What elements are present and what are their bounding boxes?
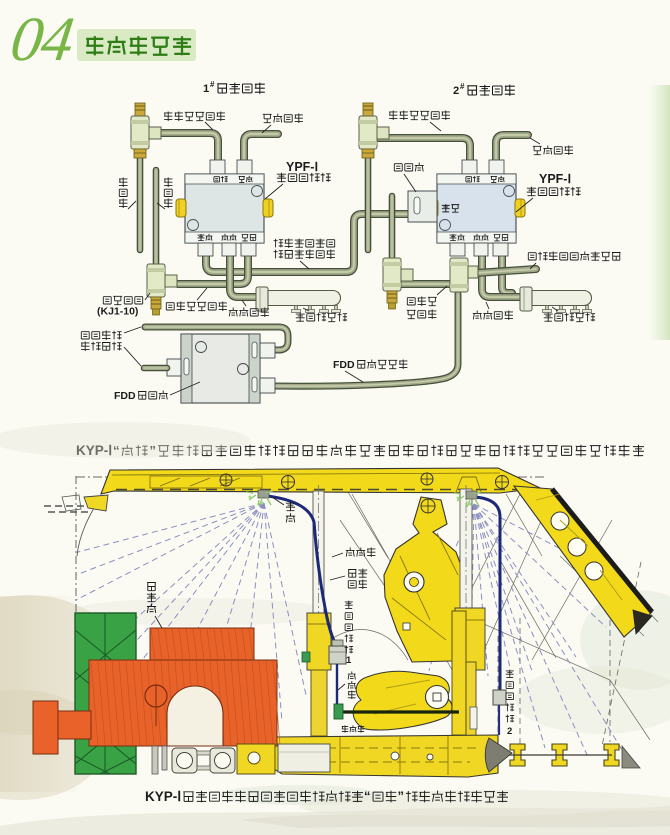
svg-text:1: 1 [203,83,209,95]
svg-text:FDD: FDD [114,390,136,402]
svg-text:#: # [460,82,465,91]
svg-text:”: ” [398,789,405,804]
svg-text:“: “ [364,789,371,804]
svg-text:2: 2 [453,85,459,97]
svg-text:KYP-Ⅰ: KYP-Ⅰ [145,789,181,804]
svg-text:2: 2 [507,726,512,737]
svg-text:FDD: FDD [333,359,355,371]
svg-text:1: 1 [346,655,352,666]
svg-text:(KJ1-10): (KJ1-10) [97,306,138,318]
svg-text:#: # [210,80,215,89]
svg-text:04: 04 [7,4,78,74]
svg-text:YPF-Ⅰ: YPF-Ⅰ [539,172,571,186]
svg-text:YPF-Ⅰ: YPF-Ⅰ [286,160,318,174]
